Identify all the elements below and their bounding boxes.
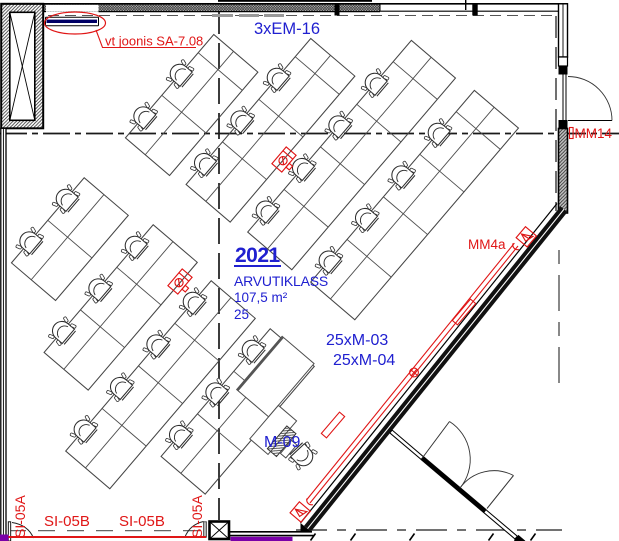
svg-text:MM4a: MM4a [468, 237, 506, 252]
svg-text:107,5 m²: 107,5 m² [234, 290, 288, 305]
svg-text:2021: 2021 [235, 244, 281, 267]
svg-text:SI-05A: SI-05A [189, 495, 205, 538]
svg-text:SI-05A: SI-05A [12, 495, 28, 538]
svg-text:3xEM-16: 3xEM-16 [254, 20, 320, 38]
svg-text:vt joonis SA-7.08: vt joonis SA-7.08 [105, 34, 203, 49]
svg-text:SI-05B: SI-05B [44, 513, 90, 530]
svg-text:MM14: MM14 [575, 126, 613, 141]
svg-text:ARVUTIKLASS: ARVUTIKLASS [234, 273, 328, 289]
svg-text:25xM-04: 25xM-04 [333, 352, 395, 369]
svg-text:M-09: M-09 [264, 434, 301, 451]
svg-text:SI-05B: SI-05B [119, 513, 165, 530]
svg-text:25: 25 [234, 307, 249, 322]
svg-text:25xM-03: 25xM-03 [326, 332, 388, 349]
